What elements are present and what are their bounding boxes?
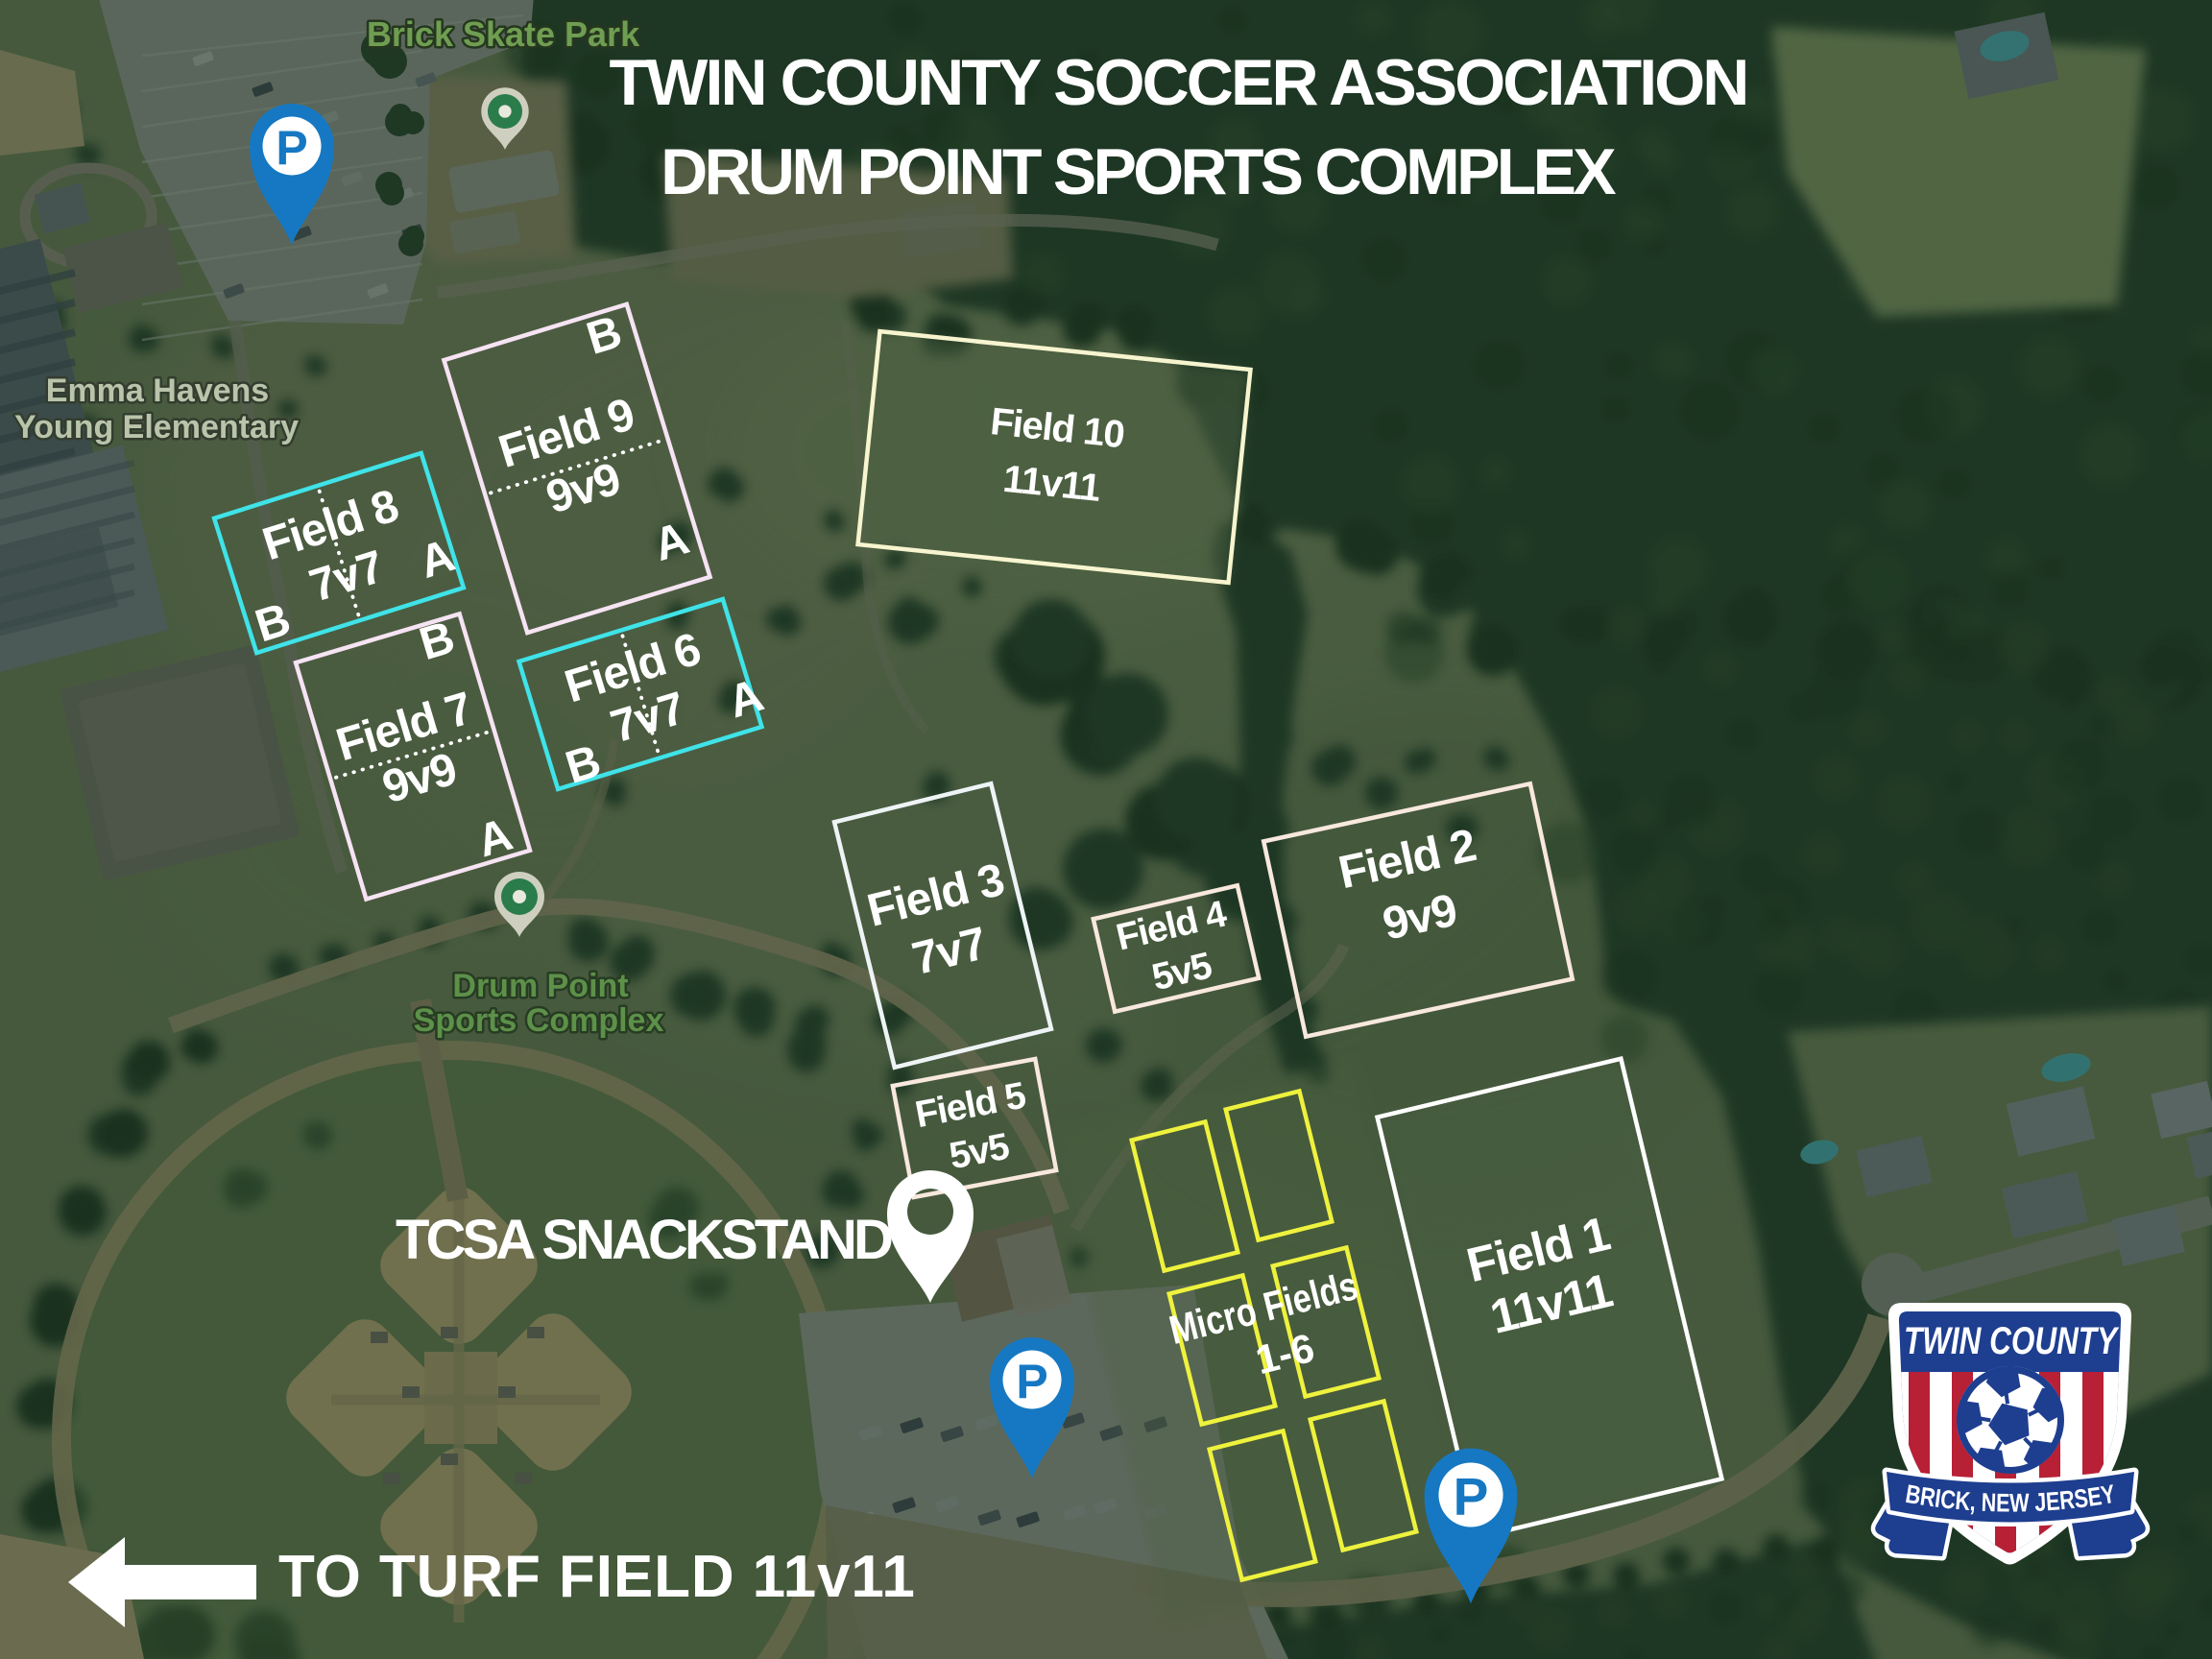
- svg-text:TWIN COUNTY SOCCER ASSOCIATION: TWIN COUNTY SOCCER ASSOCIATION: [610, 46, 1747, 119]
- svg-text:TWIN COUNTY: TWIN COUNTY: [1904, 1320, 2120, 1362]
- svg-text:P: P: [276, 121, 307, 175]
- svg-text:Drum Point: Drum Point: [452, 968, 628, 1004]
- svg-text:Emma Havens: Emma Havens: [46, 373, 269, 409]
- svg-text:Sports Complex: Sports Complex: [414, 1002, 664, 1039]
- svg-text:Brick Skate Park: Brick Skate Park: [367, 14, 640, 54]
- svg-text:DRUM POINT SPORTS COMPLEX: DRUM POINT SPORTS COMPLEX: [661, 135, 1616, 208]
- svg-text:Young Elementary: Young Elementary: [14, 409, 299, 445]
- svg-text:TCSA SNACKSTAND: TCSA SNACKSTAND: [396, 1209, 892, 1271]
- svg-text:P: P: [1016, 1355, 1047, 1408]
- svg-text:P: P: [1454, 1467, 1489, 1527]
- svg-text:TO TURF FIELD 11v11: TO TURF FIELD 11v11: [278, 1544, 916, 1610]
